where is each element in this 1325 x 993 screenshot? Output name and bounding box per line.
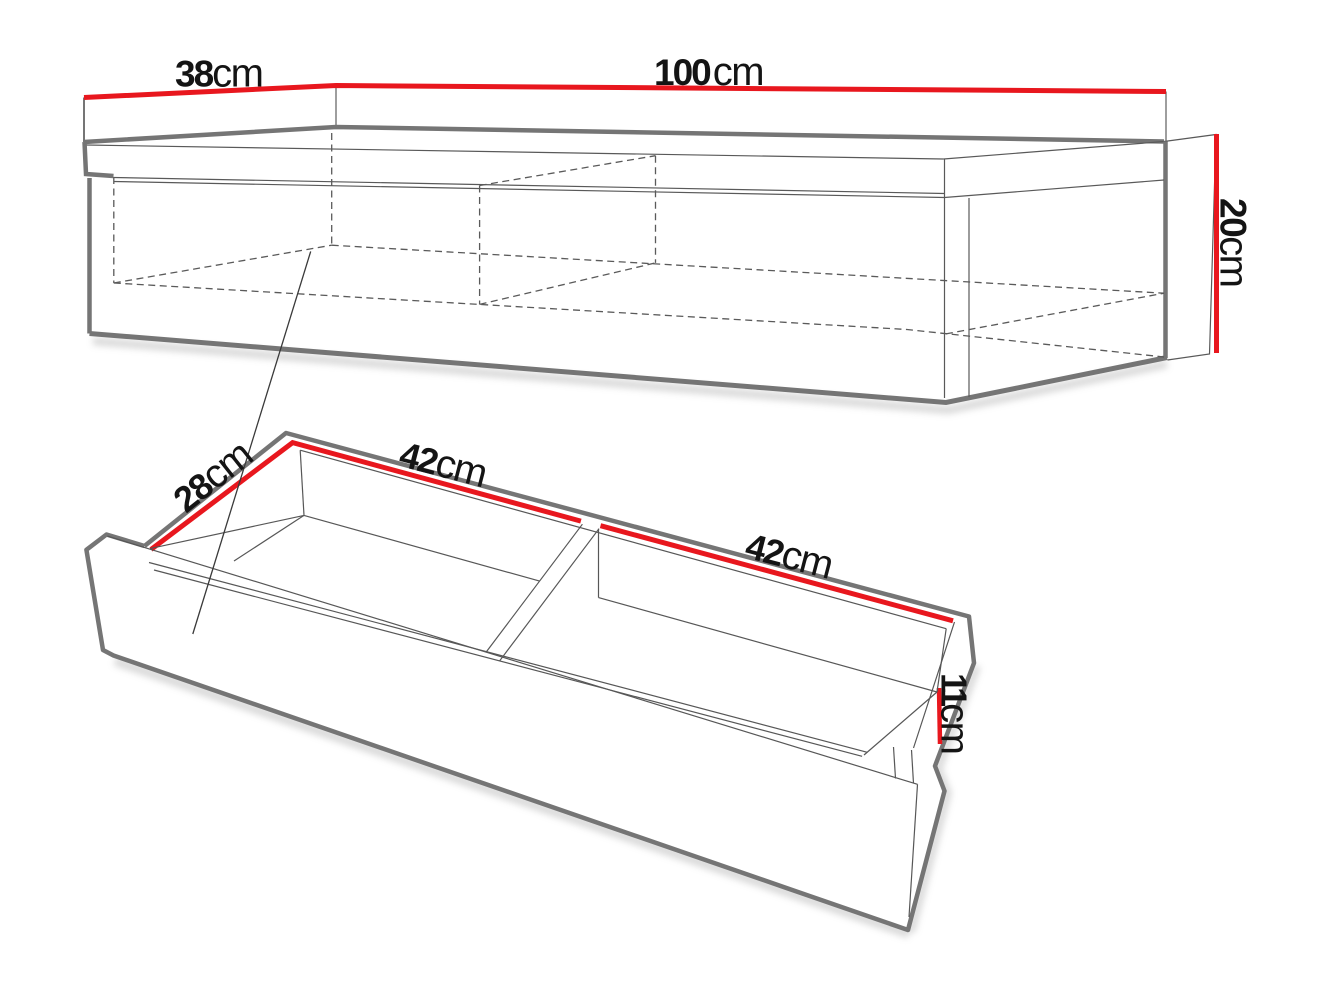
svg-text:38cm: 38cm <box>175 52 262 96</box>
svg-text:20cm: 20cm <box>1212 198 1256 286</box>
svg-text:11cm: 11cm <box>933 673 977 753</box>
svg-text:100cm: 100cm <box>654 50 763 94</box>
